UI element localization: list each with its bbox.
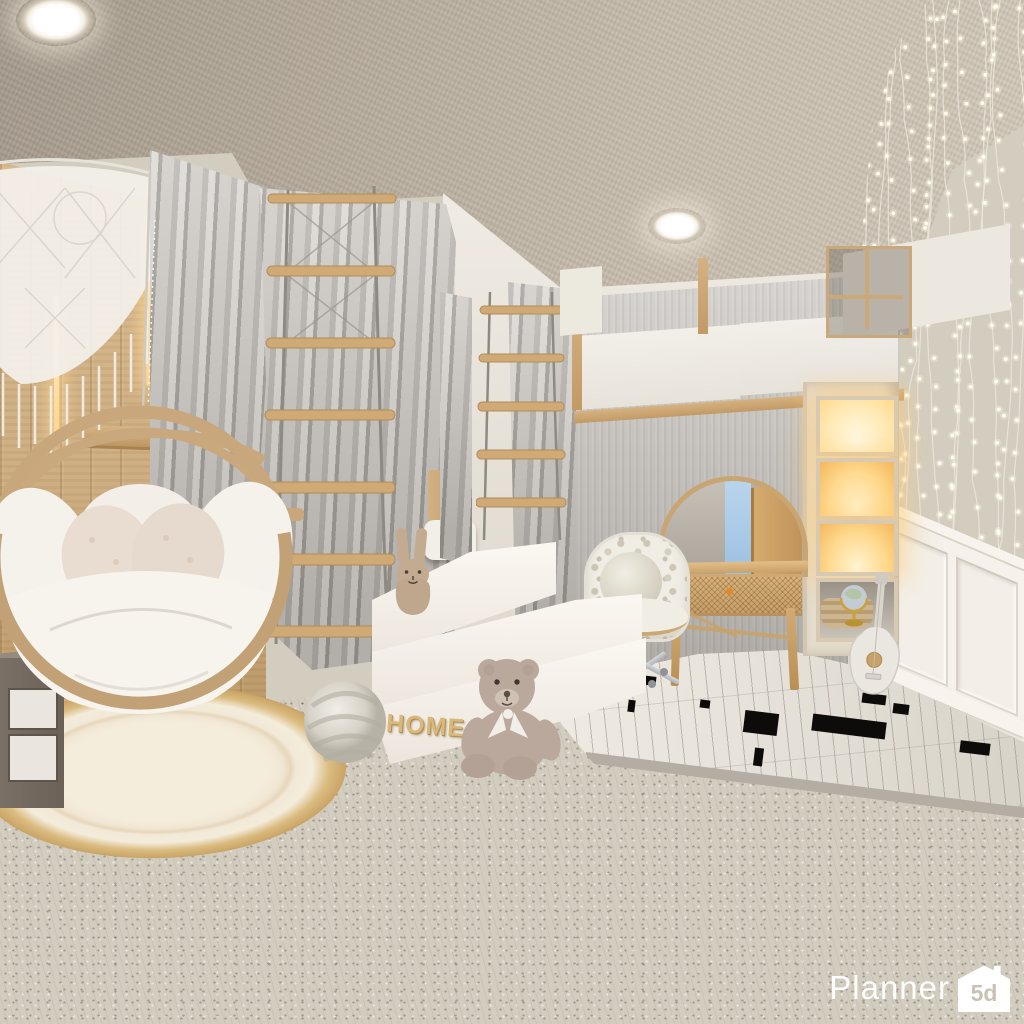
planner5d-watermark: Planner 5d: [829, 964, 1010, 1012]
drawer-knob: [726, 588, 733, 595]
knot-ball-pillow: [302, 676, 388, 768]
lighted-cubby: [816, 458, 898, 520]
toy-guitar: [837, 569, 915, 710]
upper-cabinet-left: [560, 266, 602, 336]
rope-ladder-small: [476, 292, 568, 542]
cabinet-door: [582, 324, 742, 409]
cubby-divider: [829, 295, 903, 299]
cubby-divider: [865, 249, 869, 329]
bunny-plush: [388, 526, 438, 618]
lighted-cubby: [816, 396, 898, 456]
crystal-strand: [148, 220, 155, 410]
nightstand-door: [8, 734, 58, 782]
watermark-badge-text: 5d: [971, 982, 998, 1012]
seat-cushion: [7, 571, 273, 714]
planner5d-logo-icon: 5d: [958, 964, 1010, 1012]
chair-caster: [648, 680, 656, 688]
wainscot-panel: [956, 557, 1018, 717]
rug-black-shape: [700, 699, 711, 708]
hanging-egg-chair: [0, 160, 310, 740]
ceiling-spotlight-center: [648, 208, 706, 244]
rug-black-shape: [743, 710, 779, 736]
wood-cubby-shelves: [826, 246, 912, 338]
gray-curtain-strip: [440, 292, 472, 566]
lighted-cubby: [816, 520, 898, 576]
chair-caster: [660, 668, 668, 676]
teddy-bear: [452, 650, 572, 782]
watermark-brand-text: Planner: [829, 969, 950, 1007]
ceiling-wood-post: [698, 258, 708, 334]
room-render: HOME: [0, 0, 1024, 1024]
rug-black-shape: [627, 700, 635, 713]
